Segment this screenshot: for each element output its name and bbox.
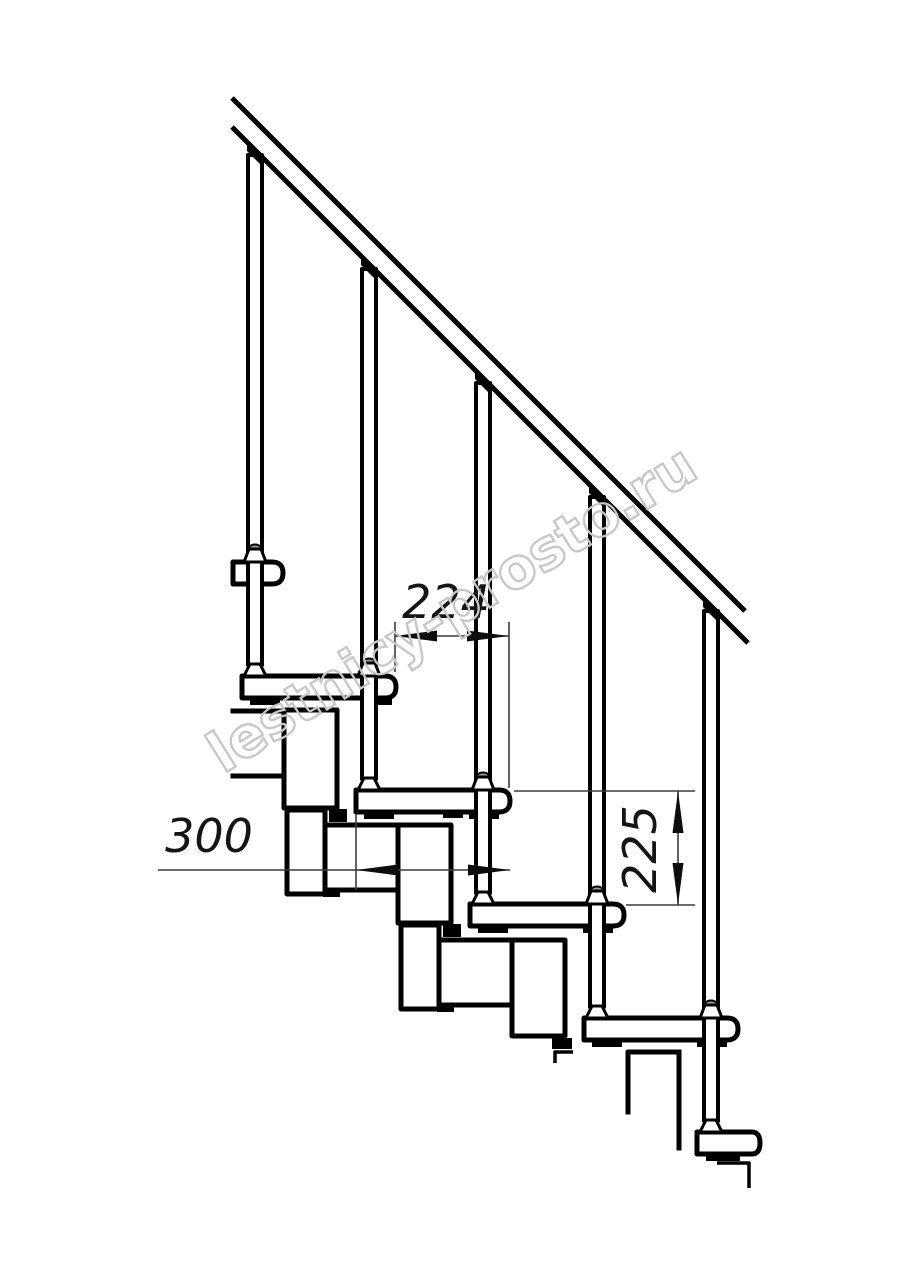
- watermark-text: lestnicy-prosto.ru: [196, 433, 708, 786]
- module-step-3: [512, 940, 573, 1063]
- dim-label-225: 225: [613, 805, 667, 893]
- baluster-4: [586, 497, 608, 1018]
- technical-drawing-page: 224 300 225 lestnicy-prosto.ru: [0, 0, 914, 1280]
- baluster-1: [244, 155, 266, 676]
- dim-label-300: 300: [165, 809, 253, 863]
- arrow-down-icon: [673, 863, 684, 905]
- baluster-3: [472, 383, 494, 904]
- baluster-5: [700, 611, 722, 1132]
- arrow-up-icon: [673, 791, 684, 833]
- module-step-4: [628, 1052, 679, 1148]
- staircase-drawing: 224 300 225 lestnicy-prosto.ru: [0, 0, 914, 1280]
- baluster-2: [358, 269, 380, 790]
- tread-5: [697, 1132, 760, 1154]
- drawing-cut-edge: [717, 1163, 749, 1188]
